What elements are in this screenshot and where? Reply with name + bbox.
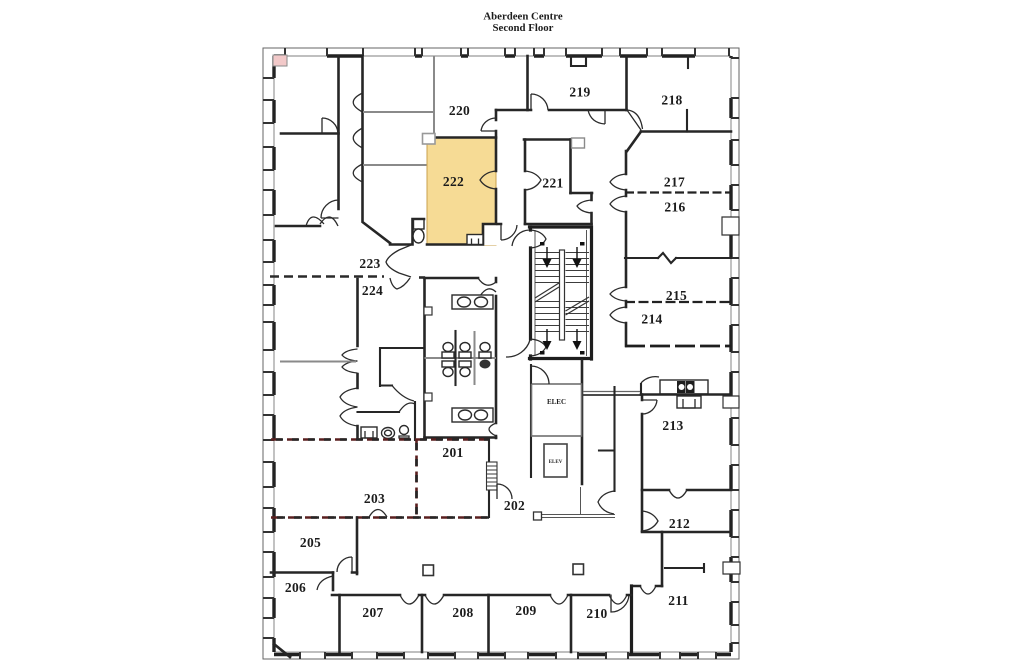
svg-text:213: 213 [662, 418, 683, 433]
svg-text:206: 206 [285, 580, 306, 595]
svg-text:216: 216 [664, 200, 685, 215]
svg-text:219: 219 [569, 85, 590, 100]
svg-text:221: 221 [542, 176, 563, 191]
svg-text:Aberdeen Centre: Aberdeen Centre [483, 11, 562, 23]
svg-text:222: 222 [443, 174, 464, 189]
svg-text:208: 208 [452, 605, 473, 620]
svg-text:ELEV: ELEV [549, 460, 563, 465]
svg-text:215: 215 [666, 288, 687, 303]
svg-text:223: 223 [359, 256, 380, 271]
svg-text:205: 205 [300, 535, 321, 550]
svg-text:214: 214 [641, 312, 662, 327]
svg-text:209: 209 [515, 603, 536, 618]
svg-text:207: 207 [362, 605, 383, 620]
svg-text:217: 217 [664, 175, 685, 190]
svg-text:201: 201 [442, 445, 463, 460]
svg-text:202: 202 [504, 498, 525, 513]
svg-text:218: 218 [661, 93, 682, 108]
svg-text:212: 212 [669, 516, 690, 531]
svg-text:220: 220 [449, 103, 470, 118]
svg-text:ELEC: ELEC [547, 398, 566, 406]
svg-text:210: 210 [586, 606, 607, 621]
svg-text:Second Floor: Second Floor [493, 22, 554, 34]
svg-text:224: 224 [362, 283, 383, 298]
svg-text:203: 203 [364, 491, 385, 506]
svg-text:211: 211 [668, 593, 688, 608]
